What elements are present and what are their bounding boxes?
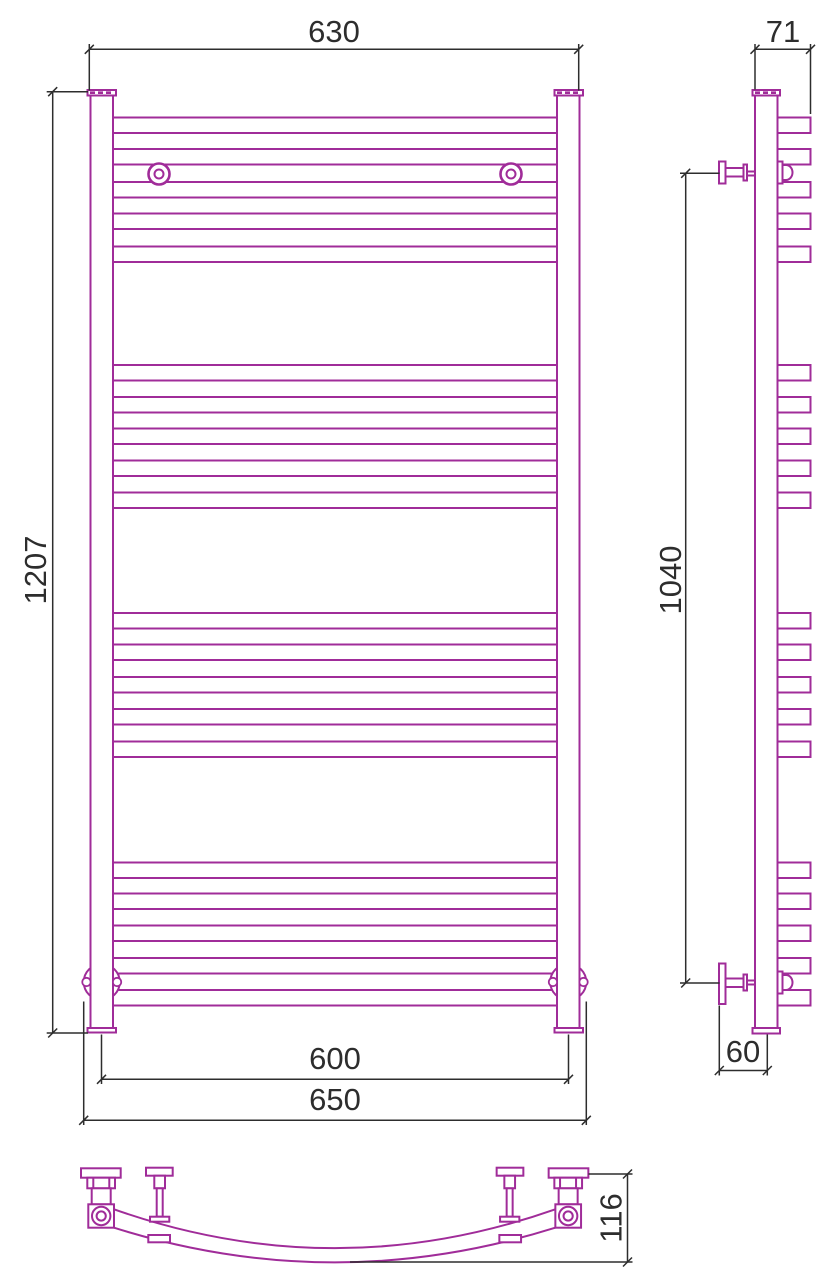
bracket-pin: [747, 172, 755, 176]
bracket-collar: [500, 1217, 519, 1222]
side-tube: [778, 863, 811, 879]
dim-label-1040: 1040: [653, 546, 688, 615]
front-tube: [113, 149, 557, 165]
fitting-dot: [549, 978, 557, 986]
front-tube: [113, 365, 557, 381]
union-circle-inner: [97, 1211, 106, 1220]
front-tube: [113, 214, 557, 230]
dim-label-630: 630: [308, 14, 360, 49]
bracket-stem-thin: [507, 1188, 513, 1216]
side-tube: [778, 677, 811, 693]
dim-label-60: 60: [726, 1034, 760, 1069]
side-tube: [778, 709, 811, 725]
bracket-wall-flange: [497, 1168, 524, 1176]
fitting-dot: [113, 978, 121, 986]
side-post-base: [753, 1028, 781, 1034]
dim-label-71: 71: [766, 14, 800, 49]
dim-600: 600: [97, 1035, 573, 1085]
bottom-bracket-left: [146, 1168, 173, 1243]
dim-1040: 1040: [653, 169, 720, 988]
front-tube: [113, 742, 557, 758]
bracket-wall-flange: [719, 964, 726, 1005]
dim-116: 116: [350, 1170, 633, 1267]
side-tube: [778, 429, 811, 445]
front-tube: [113, 709, 557, 725]
side-view: [719, 90, 811, 1034]
side-tube: [778, 493, 811, 509]
side-tubes: [778, 118, 811, 1006]
bottom-fitting-right: [549, 1168, 589, 1227]
side-post: [755, 95, 778, 1028]
valve-hex-nut: [554, 1178, 582, 1189]
front-tube: [113, 958, 557, 974]
side-tube: [778, 214, 811, 230]
bracket-wall-flange: [719, 162, 726, 184]
front-post-right: [557, 95, 580, 1028]
front-tube: [113, 118, 557, 134]
valve-neck: [559, 1188, 578, 1204]
bracket-stem-thin: [157, 1188, 163, 1216]
front-tube: [113, 493, 557, 509]
front-tube: [113, 429, 557, 445]
side-tube: [778, 894, 811, 910]
wall-bracket-head-right-inner: [507, 170, 516, 179]
fitting-dot: [82, 978, 90, 986]
dim-label-650: 650: [309, 1082, 361, 1117]
front-tube: [113, 461, 557, 477]
bracket-stem: [504, 1176, 515, 1189]
valve-flange: [549, 1168, 589, 1177]
valve-neck: [92, 1188, 111, 1204]
towel-rail-drawing: 630 71 1207 1040: [0, 0, 831, 1280]
front-tube: [113, 645, 557, 661]
curved-tube-upper-edge: [114, 1209, 555, 1248]
bracket-clamp-boss: [783, 165, 793, 180]
fitting-dot: [579, 978, 587, 986]
bracket-wall-flange: [146, 1168, 173, 1176]
dim-1207: 1207: [18, 87, 88, 1037]
side-tube: [778, 247, 811, 263]
valve-hex-nut: [87, 1178, 115, 1189]
front-tube: [113, 182, 557, 198]
front-tube: [113, 613, 557, 629]
bracket-stem: [726, 979, 744, 988]
dim-label-116: 116: [594, 1193, 629, 1242]
bracket-collar: [150, 1217, 169, 1222]
front-tube: [113, 990, 557, 1006]
bracket-stem: [154, 1176, 165, 1189]
union-circle-inner: [564, 1211, 573, 1220]
front-tube: [113, 247, 557, 263]
wall-bracket-head-left-inner: [155, 170, 164, 179]
front-tube: [113, 863, 557, 879]
bracket-collar-under-tube: [148, 1235, 170, 1242]
side-tube: [778, 645, 811, 661]
side-tube: [778, 742, 811, 758]
bottom-bracket-right: [497, 1168, 524, 1243]
front-view: [82, 90, 588, 1033]
front-tube: [113, 677, 557, 693]
dimensions: 630 71 1207 1040: [18, 14, 815, 1267]
front-tube: [113, 397, 557, 413]
front-tube: [113, 926, 557, 942]
dim-label-600: 600: [309, 1041, 361, 1076]
side-tube: [778, 365, 811, 381]
valve-flange: [81, 1168, 121, 1177]
side-tube: [778, 461, 811, 477]
bottom-view: [81, 1168, 588, 1263]
dim-label-1207: 1207: [18, 536, 53, 605]
side-tube: [778, 118, 811, 134]
dim-630: 630: [85, 14, 583, 91]
front-tubes: [113, 118, 557, 1006]
side-tube: [778, 926, 811, 942]
curved-tube-lower-edge: [114, 1228, 555, 1263]
technical-drawing-page: 630 71 1207 1040: [0, 0, 831, 1280]
front-post-base-left: [88, 1028, 117, 1033]
bracket-pin: [747, 981, 755, 985]
front-tube: [113, 894, 557, 910]
bracket-collar-under-tube: [499, 1235, 521, 1242]
bracket-stem: [726, 168, 744, 177]
bracket-clamp-boss: [783, 975, 793, 990]
side-tube: [778, 613, 811, 629]
front-post-left: [91, 95, 114, 1028]
bottom-fitting-left: [81, 1168, 121, 1227]
front-post-base-right: [555, 1028, 584, 1033]
side-tube: [778, 397, 811, 413]
